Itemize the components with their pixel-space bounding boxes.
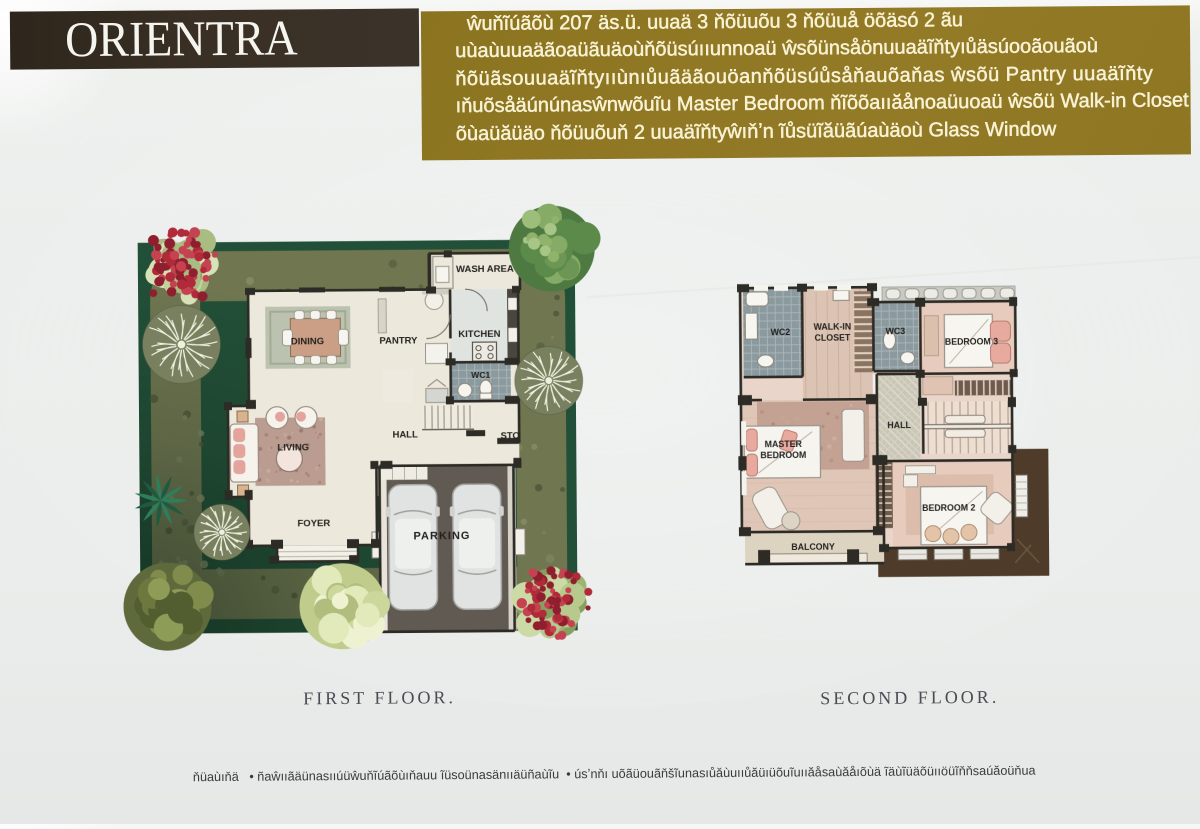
svg-text:HALL: HALL bbox=[392, 430, 418, 441]
svg-text:DINING: DINING bbox=[291, 336, 324, 347]
svg-text:PANTRY: PANTRY bbox=[379, 336, 418, 347]
svg-text:FOYER: FOYER bbox=[297, 518, 330, 529]
svg-text:BEDROOM 2: BEDROOM 2 bbox=[922, 502, 975, 512]
svg-text:WALK-IN: WALK-IN bbox=[813, 321, 851, 331]
svg-text:HALL: HALL bbox=[887, 420, 911, 430]
svg-text:KITCHEN: KITCHEN bbox=[458, 329, 500, 340]
svg-text:WC2: WC2 bbox=[771, 327, 791, 337]
svg-text:WC1: WC1 bbox=[471, 370, 490, 380]
svg-text:WC3: WC3 bbox=[886, 326, 906, 336]
svg-text:BEDROOM 3: BEDROOM 3 bbox=[945, 336, 998, 346]
svg-text:BALCONY: BALCONY bbox=[791, 541, 835, 551]
svg-text:PARKING: PARKING bbox=[413, 530, 470, 542]
svg-text:STO: STO bbox=[500, 431, 519, 442]
svg-text:LIVING: LIVING bbox=[277, 442, 309, 453]
svg-text:WASH AREA: WASH AREA bbox=[456, 264, 514, 275]
svg-text:CLOSET: CLOSET bbox=[815, 332, 851, 342]
svg-text:BEDROOM: BEDROOM bbox=[760, 450, 806, 460]
svg-text:MASTER: MASTER bbox=[765, 439, 803, 449]
